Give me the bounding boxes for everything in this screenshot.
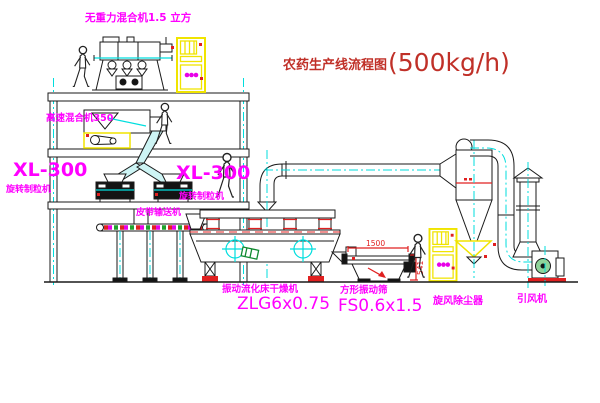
conveyor-legs bbox=[113, 231, 187, 282]
dim-1500-text: 1500 bbox=[366, 239, 385, 248]
belt-conveyor bbox=[97, 209, 210, 282]
dryer-spring-mounts bbox=[202, 262, 324, 282]
label-granulator-left-name: 旋转制粒机 bbox=[5, 183, 51, 195]
label-belt-conveyor: 皮带输送机 bbox=[135, 206, 181, 218]
label-cyclone: 旋风除尘器 bbox=[432, 294, 484, 307]
worker-figure-1 bbox=[73, 46, 90, 86]
label-screen-model: FS0.6x1.5 bbox=[338, 296, 422, 316]
label-granulator-left-model: XL-300 bbox=[13, 159, 87, 181]
granulator-left bbox=[96, 174, 134, 202]
label-dryer-model: ZLG6x0.75 bbox=[237, 294, 330, 314]
label-screen-name: 方形振动筛 bbox=[340, 284, 388, 296]
fluid-bed-dryer bbox=[190, 210, 352, 282]
title-chinese: 农药生产线流程图 bbox=[282, 57, 387, 73]
vibrating-screen: 1500 541 bbox=[342, 239, 425, 282]
label-granulator-right-model: XL-300 bbox=[176, 162, 250, 184]
induced-draft-fan bbox=[528, 246, 566, 286]
control-cabinet-upper bbox=[177, 38, 205, 92]
process-flow-diagram: 1500 541 bbox=[0, 0, 600, 403]
label-fan: 引风机 bbox=[517, 292, 547, 305]
label-high-speed-mixer: 高速混合机350 bbox=[46, 112, 114, 124]
label-granulator-right-name: 旋转制粒机 bbox=[178, 190, 224, 202]
label-gravity-mixer: 无重力混合机1.5 立方 bbox=[84, 11, 192, 24]
dryer-duct-stubs bbox=[206, 218, 332, 230]
dimension-1500: 1500 bbox=[348, 239, 408, 252]
gravity-free-mixer bbox=[92, 37, 174, 90]
control-cabinet-lower bbox=[430, 229, 457, 281]
diagram-canvas: 1500 541 bbox=[0, 0, 600, 403]
title-capacity: (500kg/h) bbox=[388, 48, 510, 77]
